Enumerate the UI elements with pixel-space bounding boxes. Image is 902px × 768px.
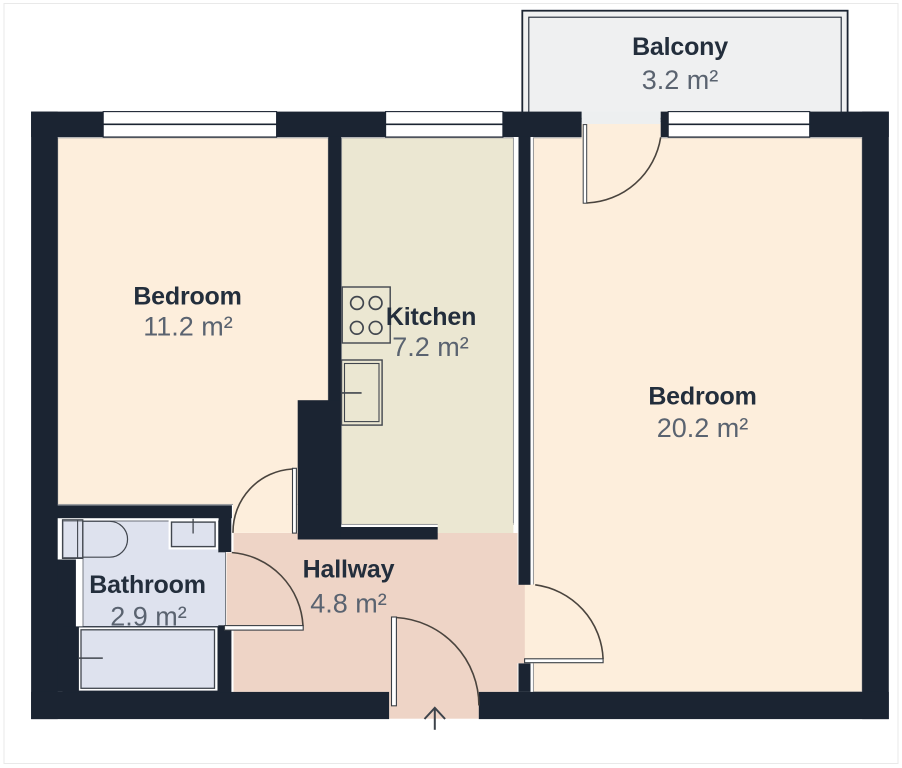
svg-text:Bedroom: Bedroom [133,283,241,311]
svg-text:Balcony: Balcony [632,33,728,61]
svg-text:11.2 m²: 11.2 m² [143,312,233,342]
svg-text:20.2 m²: 20.2 m² [657,413,749,443]
svg-text:Hallway: Hallway [303,556,395,584]
svg-text:Bathroom: Bathroom [89,571,205,599]
svg-text:Kitchen: Kitchen [386,303,476,331]
svg-text:7.2 m²: 7.2 m² [392,332,469,362]
svg-text:3.2 m²: 3.2 m² [642,65,719,95]
svg-text:Bedroom: Bedroom [648,383,756,411]
svg-text:4.8 m²: 4.8 m² [310,589,387,619]
svg-text:2.9 m²: 2.9 m² [110,602,187,632]
